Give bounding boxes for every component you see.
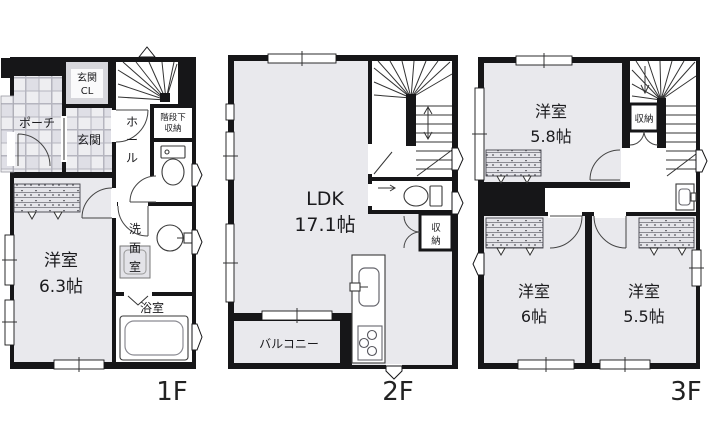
label-balcony: バルコニー <box>259 337 319 351</box>
label-genkan-cl-1: 玄関 <box>77 71 97 84</box>
label-bedroom6-1: 洋室 <box>518 282 550 301</box>
label-ldk-2: 17.1帖 <box>294 214 355 236</box>
label-washroom-2: 面 <box>129 241 141 255</box>
floor-label-2f: 2F <box>382 377 414 407</box>
1f-porch-wall-stub <box>1 58 12 78</box>
label-porch: ポーチ <box>19 116 55 130</box>
label-washroom-3: 室 <box>129 259 141 274</box>
floor-plan-image: ポーチ 玄関 CL 玄関 ホ ー ル 階段下 収納 洗 面 室 浴室 洋室 6.… <box>0 0 709 425</box>
label-stair-storage-2: 収納 <box>164 123 181 134</box>
bedroom55-closet-icon <box>639 218 694 248</box>
bedroom6-closet-icon <box>486 218 543 248</box>
entrance-opening <box>7 132 15 166</box>
washroom-door-opening <box>118 200 148 207</box>
genkan-hall-opening <box>111 110 117 142</box>
label-bedroom58-1: 洋室 <box>535 102 567 121</box>
floor-plan-2f: LDK 17.1帖 収 納 バルコニー 2F <box>223 51 463 407</box>
label-washroom-1: 洗 <box>129 222 141 236</box>
bedroom58-door-opening <box>621 148 631 182</box>
floor-label-3f: 3F <box>670 377 702 407</box>
stair-divider-wall <box>406 94 416 146</box>
stair-divider-wall <box>657 98 666 148</box>
bedroom-closet-icon <box>14 184 80 212</box>
label-hall-3: ル <box>126 151 138 165</box>
kitchen-counter-icon <box>350 255 385 363</box>
bedroom55-door-opening <box>594 210 626 218</box>
washbasin-icon-3f <box>676 184 696 210</box>
floor-plan-page: ポーチ 玄関 CL 玄関 ホ ー ル 階段下 収納 洗 面 室 浴室 洋室 6.… <box>0 0 709 425</box>
label-bedroom58-2: 5.8帖 <box>530 127 571 146</box>
label-ldk-1: LDK <box>306 188 344 210</box>
label-storage-3f: 収納 <box>634 113 653 125</box>
stair-up-arrow-icon <box>139 47 155 57</box>
label-hall-1: ホ <box>126 115 138 129</box>
stair-newel-icon <box>160 93 170 102</box>
room-ldk <box>234 61 368 313</box>
toilet-door-opening-2f <box>368 184 376 206</box>
label-genkan: 玄関 <box>77 132 101 147</box>
label-hall-2: ー <box>126 133 138 147</box>
label-storage-2f-2: 納 <box>431 235 441 247</box>
kitchen-faucet-icon <box>350 283 360 291</box>
floor-plan-1f: ポーチ 玄関 CL 玄関 ホ ー ル 階段下 収納 洗 面 室 浴室 洋室 6.… <box>1 47 202 407</box>
label-bedroom55-2: 5.5帖 <box>623 307 664 326</box>
floor-plan-3f: 洋室 5.8帖 収納 洋室 6帖 洋室 5.5帖 3F <box>472 53 707 407</box>
bedroom58-closet-icon <box>486 150 541 176</box>
bedroom-door-opening <box>111 188 117 218</box>
label-bedroom6-2: 6帖 <box>521 307 547 326</box>
bedroom6-door-opening <box>548 210 582 218</box>
bathtub-icon <box>120 316 188 360</box>
label-bedroom63-1: 洋室 <box>44 251 78 271</box>
label-bedroom55-1: 洋室 <box>628 282 660 301</box>
label-storage-2f-1: 収 <box>431 222 441 234</box>
label-bathroom: 浴室 <box>140 300 164 315</box>
floor-label-1f: 1F <box>156 377 188 407</box>
label-genkan-cl-2: CL <box>81 86 94 97</box>
toilet-door-opening <box>149 176 155 202</box>
label-stair-storage-1: 階段下 <box>160 112 186 123</box>
toilet-icon-1f <box>161 146 185 185</box>
label-bedroom63-2: 6.3帖 <box>39 277 83 297</box>
